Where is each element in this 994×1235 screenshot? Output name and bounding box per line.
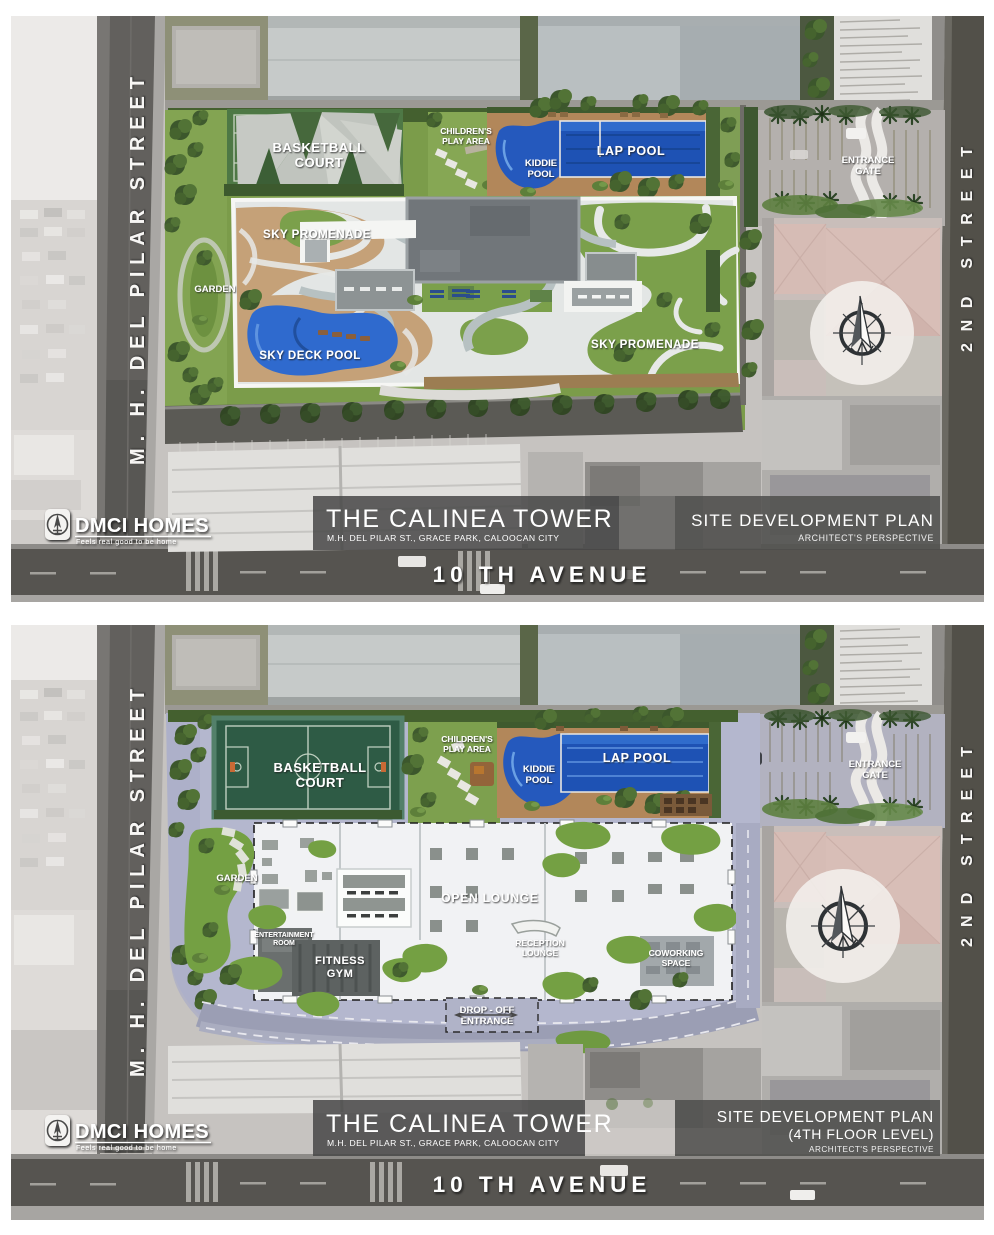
svg-text:ENTRANCE: ENTRANCE [849,759,902,770]
svg-text:LAP POOL: LAP POOL [597,144,665,158]
svg-text:SITE DEVELOPMENT PLAN: SITE DEVELOPMENT PLAN [691,511,934,530]
svg-text:GYM: GYM [327,968,354,980]
svg-text:PLAY AREA: PLAY AREA [442,136,490,146]
svg-text:SKY PROMENADE: SKY PROMENADE [591,339,699,351]
svg-text:RECEPTION: RECEPTION [515,938,565,948]
svg-text:GATE: GATE [862,770,888,781]
svg-text:POOL: POOL [528,169,555,180]
svg-text:ENTRANCE: ENTRANCE [461,1016,514,1027]
svg-text:THE CALINEA TOWER: THE CALINEA TOWER [326,505,613,533]
svg-text:ENTRANCE: ENTRANCE [842,155,895,166]
svg-text:CHILDREN'S: CHILDREN'S [440,126,492,136]
svg-text:GARDEN: GARDEN [216,873,257,884]
svg-text:LAP POOL: LAP POOL [603,751,671,765]
svg-text:ARCHITECT'S PERSPECTIVE: ARCHITECT'S PERSPECTIVE [798,533,934,543]
svg-text:ENTERTAINMENT: ENTERTAINMENT [254,932,314,939]
svg-text:OPEN LOUNGE: OPEN LOUNGE [441,891,538,905]
svg-text:M.H. DEL PILAR ST., GRACE PARK: M.H. DEL PILAR ST., GRACE PARK, CALOOCAN… [327,1138,559,1148]
svg-text:POOL: POOL [526,775,553,786]
svg-text:COURT: COURT [296,775,345,790]
svg-text:DROP - OFF: DROP - OFF [460,1005,515,1016]
svg-text:Feels real good to be home: Feels real good to be home [76,1145,177,1152]
svg-text:COWORKING: COWORKING [649,948,704,958]
svg-text:SPACE: SPACE [662,958,691,968]
svg-text:LOUNGE: LOUNGE [522,948,559,958]
svg-text:CHILDREN'S: CHILDREN'S [441,734,493,744]
svg-text:PLAY AREA: PLAY AREA [443,744,491,754]
svg-text:GATE: GATE [855,166,881,177]
svg-text:ARCHITECT'S PERSPECTIVE: ARCHITECT'S PERSPECTIVE [809,1145,934,1154]
svg-text:GARDEN: GARDEN [194,284,235,295]
svg-text:FITNESS: FITNESS [315,955,365,967]
svg-text:THE CALINEA TOWER: THE CALINEA TOWER [326,1110,613,1138]
svg-text:10 TH AVENUE: 10 TH AVENUE [433,562,652,587]
svg-text:COURT: COURT [295,155,344,170]
svg-text:Feels real good to be home: Feels real good to be home [76,539,177,546]
svg-text:10 TH AVENUE: 10 TH AVENUE [433,1172,652,1197]
svg-text:(4TH FLOOR LEVEL): (4TH FLOOR LEVEL) [788,1126,934,1142]
svg-text:SITE DEVELOPMENT PLAN: SITE DEVELOPMENT PLAN [717,1109,934,1126]
svg-text:ROOM: ROOM [273,940,295,947]
svg-text:DMCI HOMES: DMCI HOMES [75,1121,209,1143]
svg-text:BASKETBALL: BASKETBALL [272,140,365,155]
svg-text:KIDDIE: KIDDIE [523,764,555,775]
svg-text:KIDDIE: KIDDIE [525,158,557,169]
svg-text:SKY PROMENADE: SKY PROMENADE [263,229,371,241]
svg-text:SKY DECK POOL: SKY DECK POOL [259,350,361,362]
svg-text:BASKETBALL: BASKETBALL [273,760,366,775]
svg-text:DMCI HOMES: DMCI HOMES [75,515,209,537]
svg-text:M.H. DEL PILAR ST., GRACE PARK: M.H. DEL PILAR ST., GRACE PARK, CALOOCAN… [327,533,559,543]
